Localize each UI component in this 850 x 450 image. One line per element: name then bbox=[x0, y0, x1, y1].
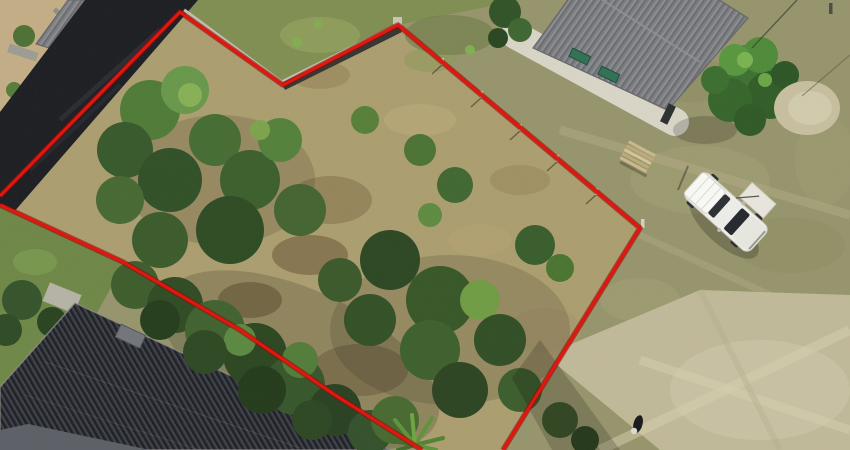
aerial-photo bbox=[0, 0, 850, 450]
aerial-photo-canvas bbox=[0, 0, 850, 450]
